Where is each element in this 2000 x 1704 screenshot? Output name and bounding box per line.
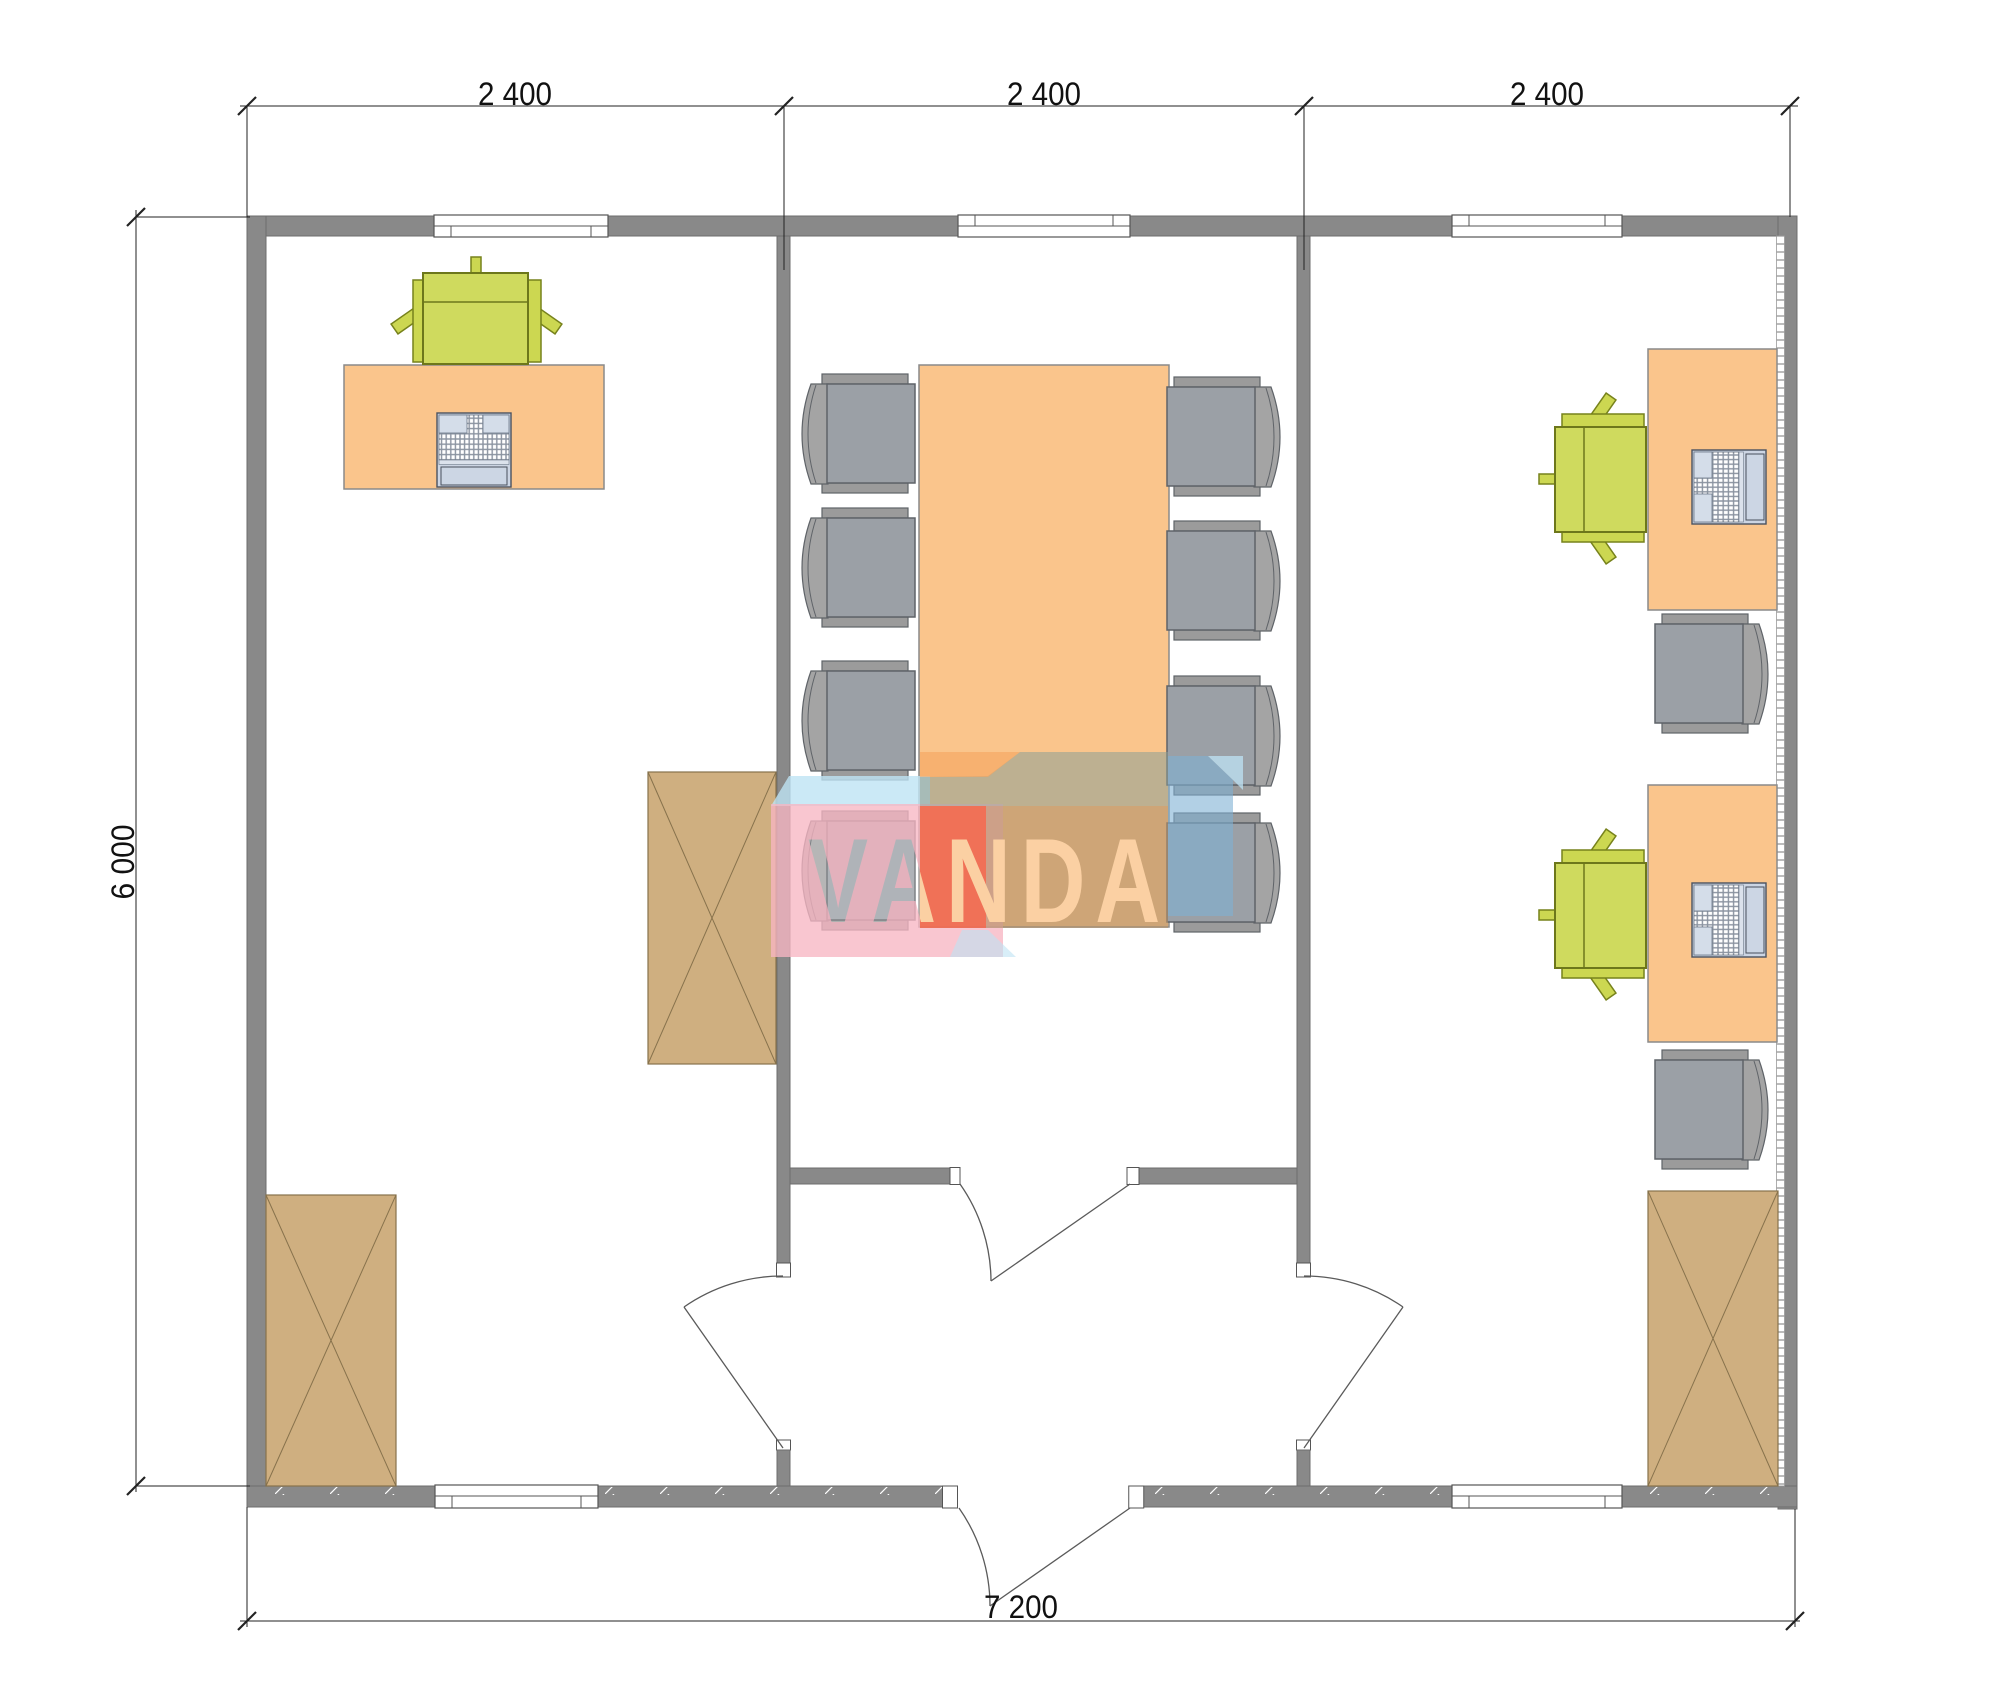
svg-text:VANDA: VANDA bbox=[808, 815, 1170, 949]
svg-text:7 200: 7 200 bbox=[984, 1589, 1058, 1625]
svg-text:2 400: 2 400 bbox=[478, 76, 552, 112]
svg-text:2 400: 2 400 bbox=[1510, 76, 1584, 112]
svg-text:2 400: 2 400 bbox=[1007, 76, 1081, 112]
svg-text:6 000: 6 000 bbox=[105, 825, 141, 900]
